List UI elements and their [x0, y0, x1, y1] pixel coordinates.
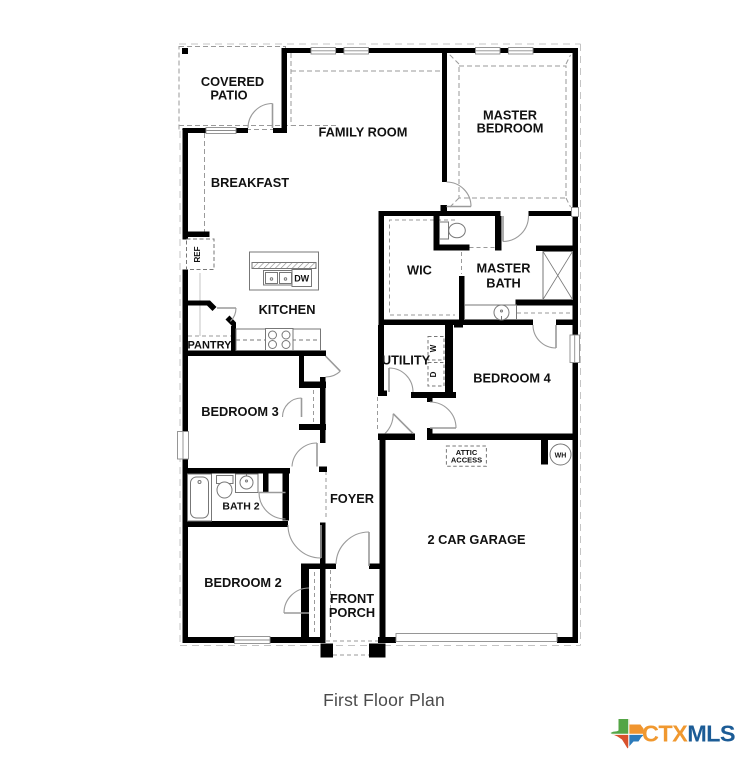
svg-text:BEDROOM: BEDROOM	[477, 121, 544, 136]
svg-text:CTXMLS: CTXMLS	[642, 721, 735, 747]
svg-text:FAMILY ROOM: FAMILY ROOM	[319, 125, 408, 140]
svg-text:FOYER: FOYER	[330, 491, 374, 506]
svg-text:FRONT: FRONT	[330, 591, 374, 606]
svg-text:2 CAR GARAGE: 2 CAR GARAGE	[427, 532, 526, 547]
svg-text:BEDROOM 2: BEDROOM 2	[204, 575, 282, 590]
svg-text:MASTER: MASTER	[476, 261, 530, 276]
svg-text:BATH 2: BATH 2	[222, 501, 259, 513]
svg-text:PANTRY: PANTRY	[188, 340, 233, 352]
svg-text:First Floor Plan: First Floor Plan	[323, 690, 445, 710]
svg-text:WH: WH	[555, 453, 567, 460]
svg-text:KITCHEN: KITCHEN	[259, 302, 316, 317]
svg-text:BATH: BATH	[486, 276, 521, 291]
svg-text:ACCESS: ACCESS	[451, 456, 482, 465]
svg-text:DW: DW	[294, 274, 309, 284]
svg-text:PORCH: PORCH	[329, 605, 375, 620]
svg-text:W: W	[429, 344, 438, 352]
svg-text:D: D	[429, 371, 438, 377]
svg-text:UTILITY: UTILITY	[382, 353, 431, 368]
svg-text:WIC: WIC	[407, 263, 432, 278]
svg-text:PATIO: PATIO	[210, 88, 247, 103]
svg-text:BEDROOM 3: BEDROOM 3	[201, 404, 279, 419]
svg-text:REF: REF	[193, 246, 202, 262]
svg-text:BEDROOM 4: BEDROOM 4	[473, 371, 551, 386]
svg-text:BREAKFAST: BREAKFAST	[211, 175, 289, 190]
